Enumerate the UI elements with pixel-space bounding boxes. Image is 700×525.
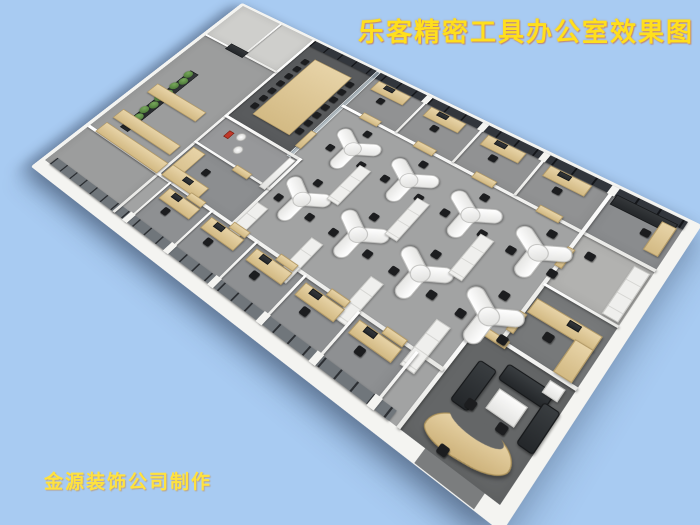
office-3d-render-scene: 乐客精密工具办公室效果图 金源装饰公司制作 (0, 0, 700, 525)
floor-plan (45, 6, 688, 505)
page-title: 乐客精密工具办公室效果图 (358, 12, 694, 49)
watermark-credit: 金源装饰公司制作 (44, 467, 212, 494)
